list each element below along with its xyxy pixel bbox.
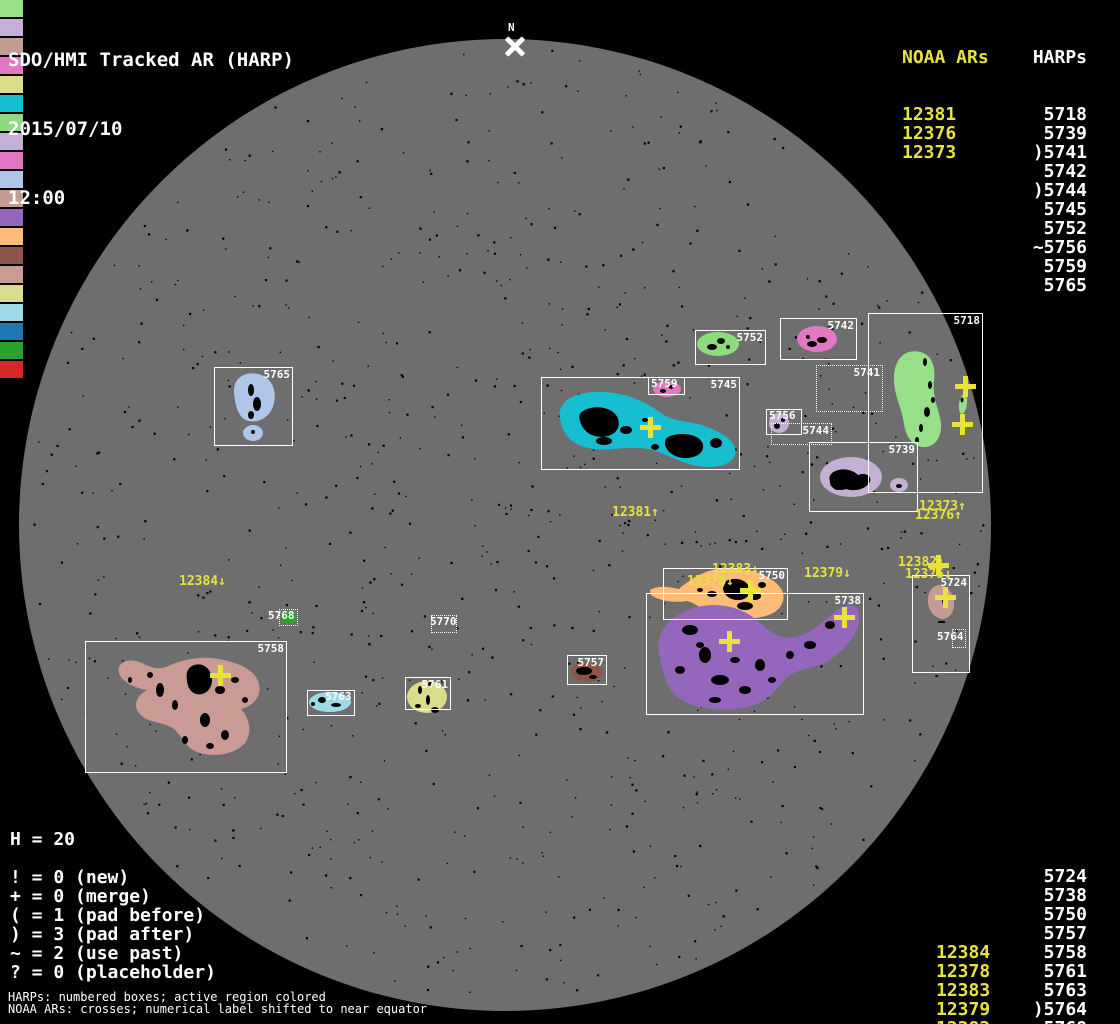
app-title: SDO/HMI Tracked AR (HARP): [8, 49, 294, 72]
flag-legend-line: ) = 3 (pad after): [10, 925, 216, 944]
legend-entry: ~5768: [1033, 1019, 1087, 1024]
legend-entry: )5741: [1033, 143, 1087, 162]
title-block: SDO/HMI Tracked AR (HARP) 2015/07/10 12:…: [8, 3, 294, 256]
legend-entry: 12373: [902, 143, 989, 162]
legend-entry: )5764: [1033, 1000, 1087, 1019]
harp-top-list: 57185739)57415742)574457455752~575657595…: [1033, 105, 1087, 295]
legend-entry: 5765: [1033, 276, 1087, 295]
legend-entry: 5742: [1033, 162, 1087, 181]
north-cross-marker: [503, 35, 527, 59]
legend-top-noaa: NOAA ARs 123811237612373: [902, 10, 989, 200]
legend-entry: 5739: [1033, 124, 1087, 143]
legend-entry: ~5756: [1033, 238, 1087, 257]
north-label: N: [508, 21, 515, 34]
flag-legend-line: ? = 0 (placeholder): [10, 963, 216, 982]
legend-entry: 5750: [1033, 905, 1087, 924]
harp-count-line: H = 20: [10, 830, 75, 849]
legend-entry: 12383: [936, 981, 990, 1000]
legend-entry: 12382: [936, 1019, 990, 1024]
legend-entry: 5724: [1033, 867, 1087, 886]
legend-entry: 5718: [1033, 105, 1087, 124]
legend-bottom-harps: 5724573857505757575857615763)5764~5768(5…: [1033, 829, 1087, 1024]
legend-entry: 12384: [936, 943, 990, 962]
legend-entry: 12376: [902, 124, 989, 143]
footnotes: HARPs: numbered boxes; active region col…: [8, 991, 427, 1015]
time-label: 12:00: [8, 187, 294, 210]
legend-entry: 5758: [1033, 943, 1087, 962]
noaa-ar-label: 12384↓: [179, 575, 226, 589]
legend-entry: 5752: [1033, 219, 1087, 238]
date-label: 2015/07/10: [8, 118, 294, 141]
legend-entry: 5738: [1033, 886, 1087, 905]
footnote-line: NOAA ARs: crosses; numerical label shift…: [8, 1003, 427, 1015]
flag-legend-line: + = 0 (merge): [10, 887, 216, 906]
legend-entry: 12378: [936, 962, 990, 981]
legend-entry: 5759: [1033, 257, 1087, 276]
harp-bottom-list: 5724573857505757575857615763)5764~5768(5…: [1033, 867, 1087, 1024]
harp-map-stage: 5765575257425741571857595745575657445739…: [0, 0, 1120, 1024]
legend-entry: 5745: [1033, 200, 1087, 219]
noaa-top-list: 123811237612373: [902, 105, 989, 162]
noaa-ars-header: NOAA ARs: [902, 48, 989, 67]
legend-entry: 5763: [1033, 981, 1087, 1000]
flag-legend: ! = 0 (new)+ = 0 (merge)( = 1 (pad befor…: [10, 868, 216, 982]
noaa-ar-label: 12376↑: [915, 509, 962, 523]
noaa-ar-label: 12378↓: [687, 575, 734, 589]
flag-legend-line: ~ = 2 (use past): [10, 944, 216, 963]
legend-entry: 12379: [936, 1000, 990, 1019]
legend-entry: 5761: [1033, 962, 1087, 981]
legend-entry: )5744: [1033, 181, 1087, 200]
noaa-ar-label: 12381↑: [612, 506, 659, 520]
noaa-bottom-list: 123841237812383123791238212375: [936, 943, 990, 1024]
harps-header: HARPs: [1033, 48, 1087, 67]
flag-legend-line: ( = 1 (pad before): [10, 906, 216, 925]
legend-top-harps: HARPs 57185739)57415742)574457455752~575…: [1033, 10, 1087, 333]
legend-bottom-noaa: 123841237812383123791238212375: [936, 905, 990, 1024]
flag-legend-line: ! = 0 (new): [10, 868, 216, 887]
legend-entry: 5757: [1033, 924, 1087, 943]
legend-entry: 12381: [902, 105, 989, 124]
noaa-ar-label: 12379↓: [804, 567, 851, 581]
noaa-ar-label: 12375↓: [905, 568, 952, 582]
